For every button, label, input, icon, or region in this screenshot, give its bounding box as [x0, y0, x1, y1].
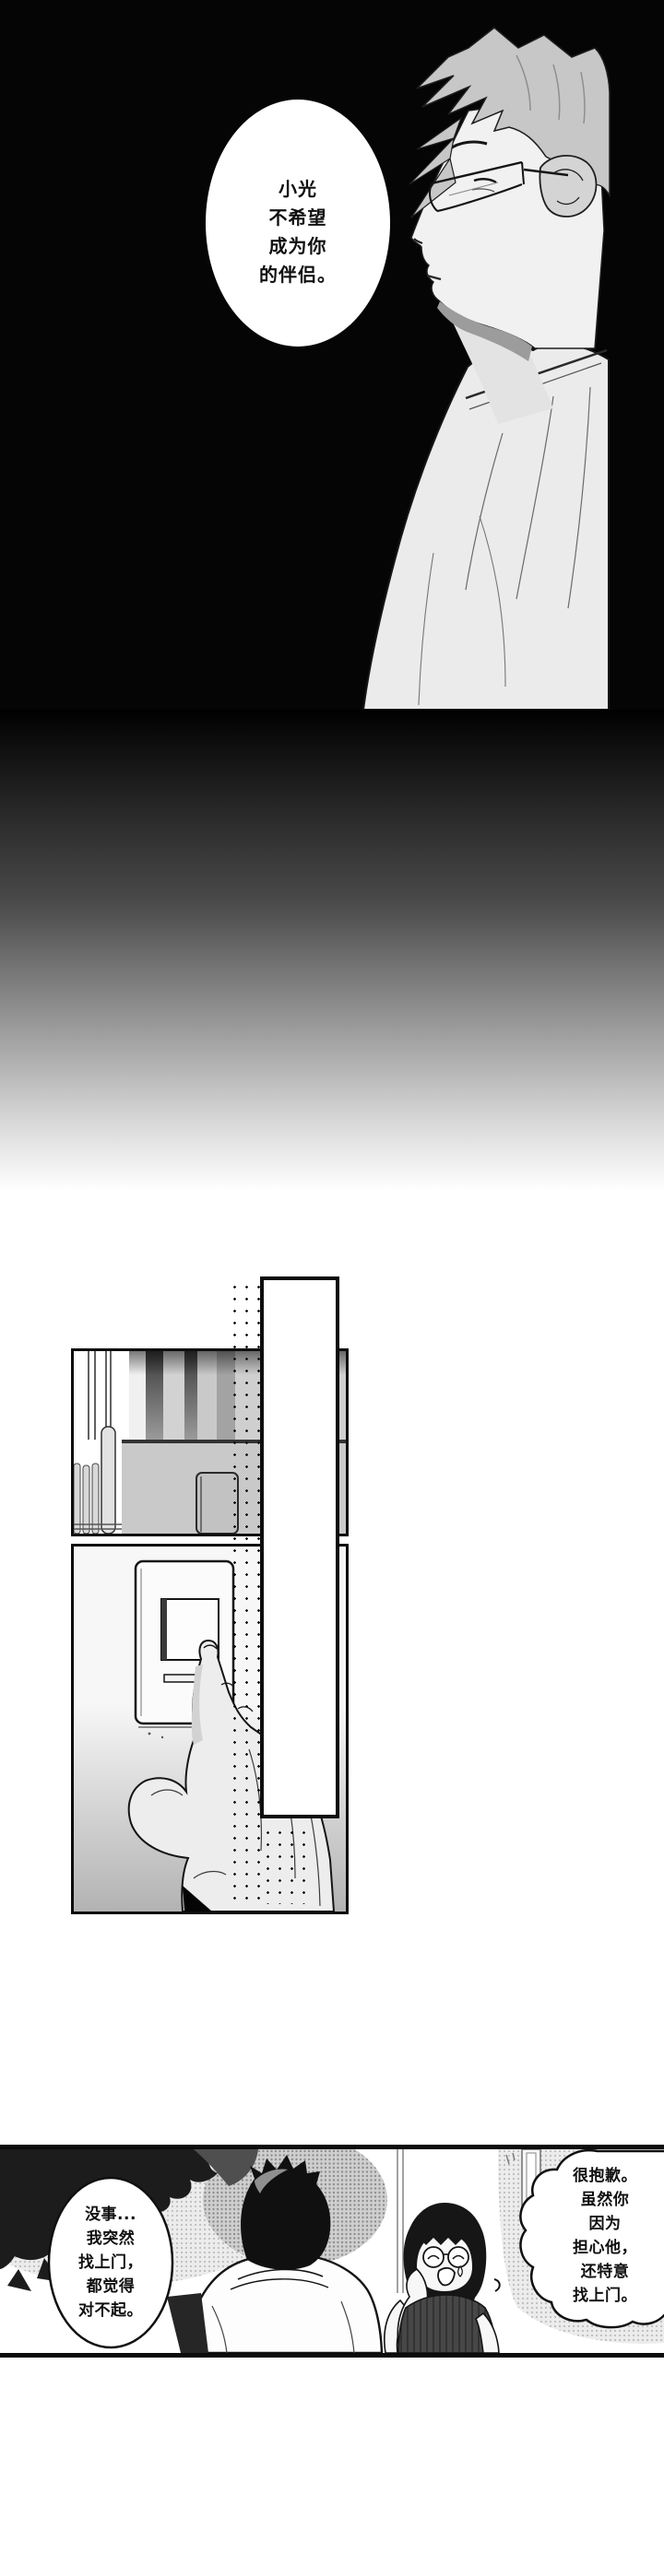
bubble-line: 不希望 — [206, 204, 390, 232]
sweat-drop — [458, 2266, 463, 2276]
halftone-dots-patch — [262, 1827, 312, 1904]
man-hair-back — [241, 2155, 330, 2270]
bubble-line: 很抱歉。 — [546, 2164, 664, 2188]
bubble-line: 因为 — [546, 2212, 664, 2236]
top-bubble-text: 小光 不希望 成为你 的伴侣。 — [206, 175, 390, 289]
bubble-line: 还特意 — [546, 2260, 664, 2284]
bubble-line: 找上门， — [49, 2251, 172, 2275]
name-slot — [164, 1675, 196, 1682]
bubble-line: 对不起。 — [49, 2299, 172, 2323]
bubble-line: 成为你 — [206, 232, 390, 261]
glasses-left-lens — [423, 2247, 444, 2267]
bubble-line: 小光 — [206, 175, 390, 204]
ear — [539, 156, 596, 217]
manga-page: 小光 不希望 成为你 的伴侣。 — [0, 0, 664, 2576]
fade-transition — [0, 710, 664, 1191]
bubble-line: 的伴侣。 — [206, 261, 390, 289]
bubble-line: 没事... — [49, 2203, 172, 2227]
top-panel-art — [0, 0, 664, 710]
woman-with-glasses — [385, 2203, 500, 2353]
curl-mark — [494, 2279, 500, 2291]
halftone-dots-column — [229, 1281, 260, 1908]
bubble-line: 虽然你 — [546, 2188, 664, 2212]
glasses-right-lens — [448, 2247, 468, 2267]
narration-box — [260, 1276, 339, 1818]
bubble-line: 我突然 — [49, 2227, 172, 2251]
right-bubble-text: 很抱歉。 虽然你 因为 担心他， 还特意 找上门。 — [546, 2164, 664, 2308]
bubble-line: 担心他， — [546, 2236, 664, 2260]
bubble-line: 都觉得 — [49, 2275, 172, 2299]
post — [101, 1427, 115, 1534]
bubble-line: 找上门。 — [546, 2284, 664, 2308]
left-bubble-text: 没事... 我突然 找上门， 都觉得 对不起。 — [49, 2203, 172, 2323]
top-panel: 小光 不希望 成为你 的伴侣。 — [0, 0, 664, 710]
bottom-panel: 没事... 我突然 找上门， 都觉得 对不起。 很抱歉。 虽然你 因为 担心他，… — [0, 2145, 664, 2358]
